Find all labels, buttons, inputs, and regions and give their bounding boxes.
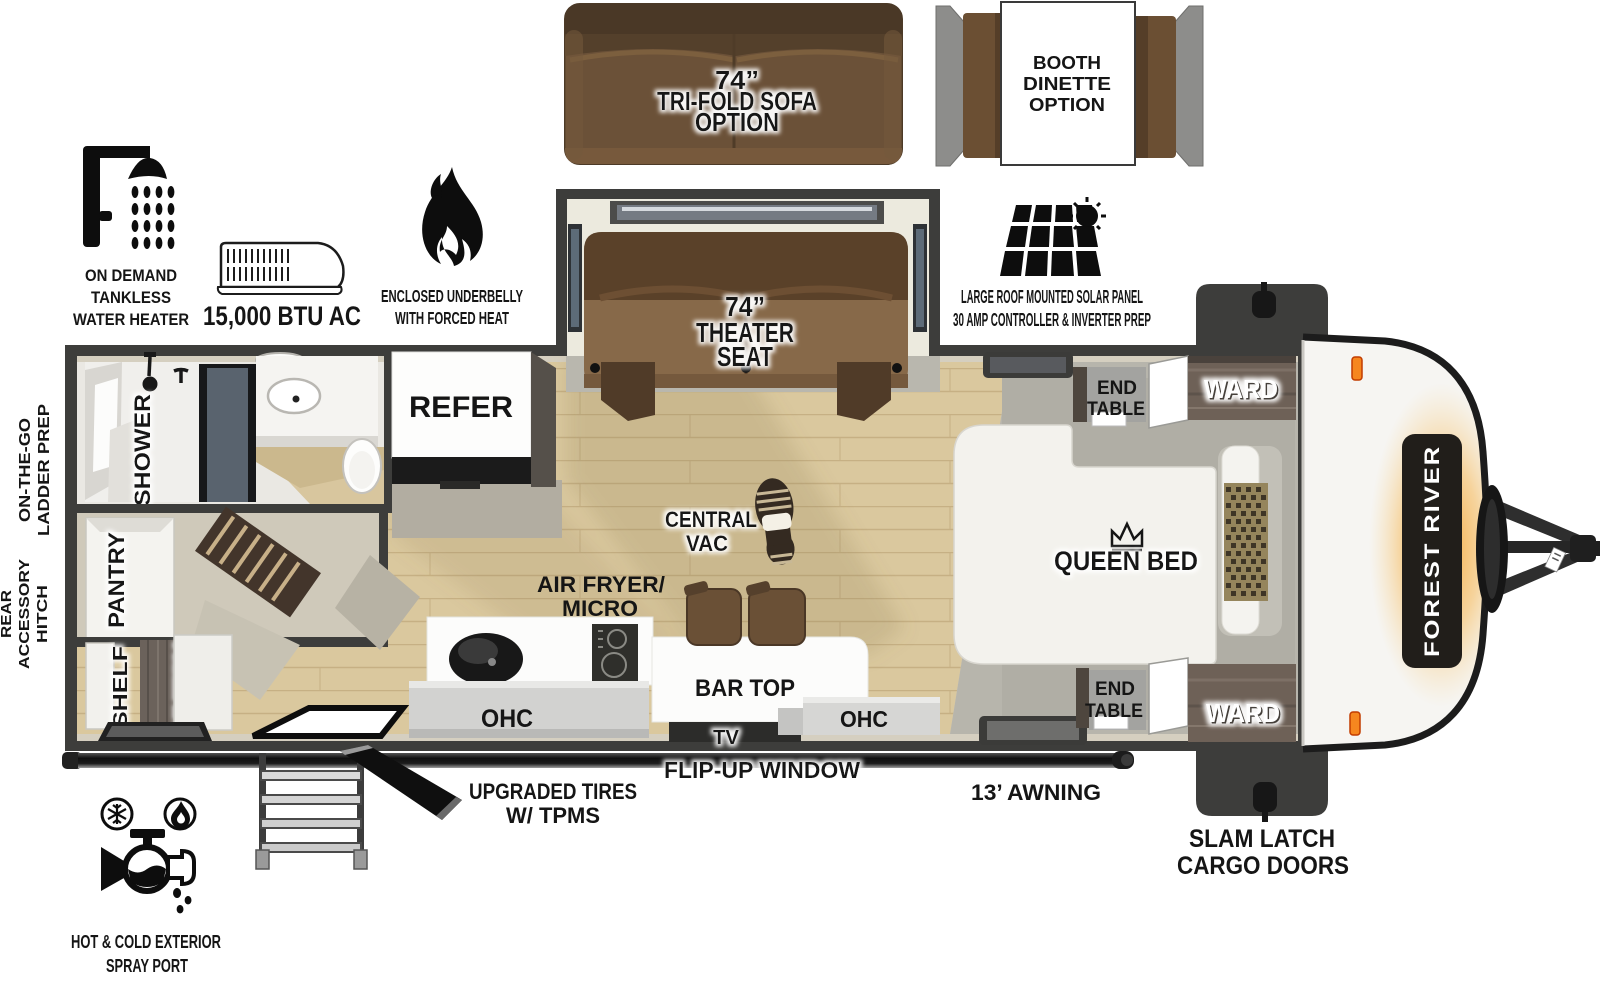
svg-text:HOT & COLD EXTERIOR: HOT & COLD EXTERIOR (71, 932, 221, 952)
svg-text:WITH FORCED HEAT: WITH FORCED HEAT (395, 308, 509, 328)
svg-text:AIR FRYER/: AIR FRYER/ (537, 572, 665, 597)
svg-text:TV: TV (713, 727, 740, 749)
svg-text:BOOTH: BOOTH (1033, 53, 1101, 73)
svg-text:ON DEMAND: ON DEMAND (85, 266, 177, 285)
svg-text:BAR TOP: BAR TOP (695, 675, 795, 702)
svg-text:15,000 BTU AC: 15,000 BTU AC (203, 301, 361, 331)
svg-text:TABLE: TABLE (1087, 399, 1145, 420)
svg-text:WATER HEATER: WATER HEATER (73, 310, 189, 329)
svg-text:SLAM LATCH: SLAM LATCH (1189, 825, 1335, 853)
svg-text:TABLE: TABLE (1085, 701, 1143, 722)
svg-text:LADDER PREP: LADDER PREP (36, 404, 53, 536)
svg-text:ON-THE-GO: ON-THE-GO (17, 418, 34, 522)
svg-text:ACCESSORY: ACCESSORY (16, 559, 33, 669)
svg-text:FLIP-UP WINDOW: FLIP-UP WINDOW (664, 757, 860, 783)
svg-text:END: END (1097, 378, 1137, 399)
svg-text:QUEEN BED: QUEEN BED (1054, 546, 1198, 576)
svg-text:W/ TPMS: W/ TPMS (506, 803, 600, 828)
svg-text:TANKLESS: TANKLESS (91, 288, 171, 307)
svg-text:UPGRADED TIRES: UPGRADED TIRES (469, 779, 637, 804)
svg-text:WARD: WARD (1206, 698, 1280, 728)
svg-text:13’ AWNING: 13’ AWNING (971, 780, 1101, 805)
svg-text:REAR: REAR (0, 590, 15, 638)
svg-text:OHC: OHC (481, 705, 533, 733)
svg-text:LARGE ROOF MOUNTED SOLAR PANEL: LARGE ROOF MOUNTED SOLAR PANEL (961, 287, 1143, 307)
svg-text:PANTRY: PANTRY (104, 532, 129, 628)
svg-text:SPRAY PORT: SPRAY PORT (106, 956, 188, 976)
svg-text:WARD: WARD (1204, 374, 1278, 404)
svg-text:OPTION: OPTION (695, 107, 779, 137)
svg-text:CARGO DOORS: CARGO DOORS (1177, 852, 1349, 880)
svg-text:DINETTE: DINETTE (1023, 74, 1111, 94)
svg-text:SHELF: SHELF (110, 646, 132, 728)
svg-text:ENCLOSED UNDERBELLY: ENCLOSED UNDERBELLY (381, 286, 523, 306)
svg-text:SHOWER: SHOWER (130, 394, 155, 506)
svg-text:FOREST RIVER: FOREST RIVER (1421, 445, 1444, 657)
svg-text:OHC: OHC (840, 706, 888, 732)
svg-text:OPTION: OPTION (1029, 95, 1105, 115)
svg-text:HITCH: HITCH (34, 585, 51, 643)
svg-text:END: END (1095, 679, 1135, 700)
svg-text:VAC: VAC (686, 531, 728, 556)
svg-text:REFER: REFER (409, 391, 513, 424)
svg-text:MICRO: MICRO (562, 596, 638, 621)
svg-text:30 AMP CONTROLLER & INVERTER P: 30 AMP CONTROLLER & INVERTER PREP (953, 310, 1151, 330)
svg-text:SEAT: SEAT (717, 341, 773, 372)
svg-text:CENTRAL: CENTRAL (665, 507, 757, 532)
